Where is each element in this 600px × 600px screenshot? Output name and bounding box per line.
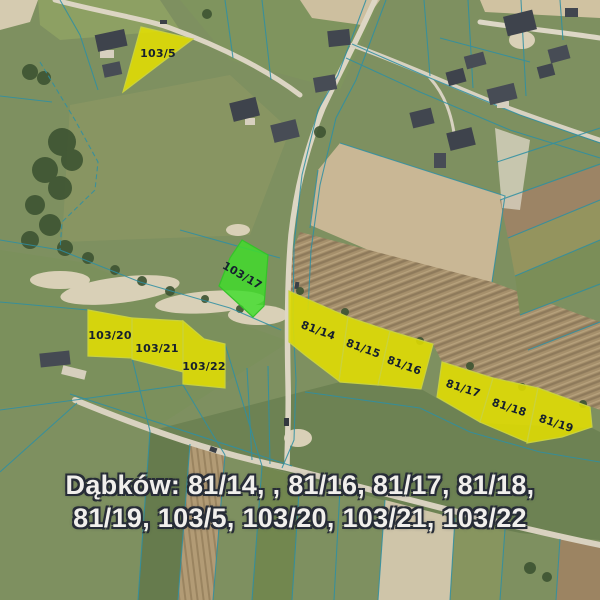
- caption-line-2: 81/19, 103/5, 103/20, 103/21, 103/22: [0, 502, 600, 535]
- parcel-label-103/22: 103/22: [182, 360, 226, 373]
- house-roof: [565, 8, 578, 17]
- house-roof: [327, 29, 351, 47]
- vehicle: [160, 20, 167, 24]
- driveway: [245, 118, 255, 125]
- field-bottom-strip-brown: [556, 539, 600, 600]
- parcel-label-103/5: 103/5: [140, 47, 176, 60]
- driveway: [100, 50, 114, 58]
- caption-line-1: Dąbków: 81/14, , 81/16, 81/17, 81/18,: [0, 469, 600, 502]
- parcel-label-103/20: 103/20: [88, 329, 132, 342]
- parcel-label-103/21: 103/21: [135, 342, 179, 355]
- house-roof: [434, 153, 446, 168]
- caption: Dąbków: 81/14, , 81/16, 81/17, 81/18, 81…: [0, 469, 600, 535]
- aerial-parcel-map[interactable]: 103/5103/17103/20103/21103/2281/1481/158…: [0, 0, 600, 600]
- vehicle: [284, 418, 289, 426]
